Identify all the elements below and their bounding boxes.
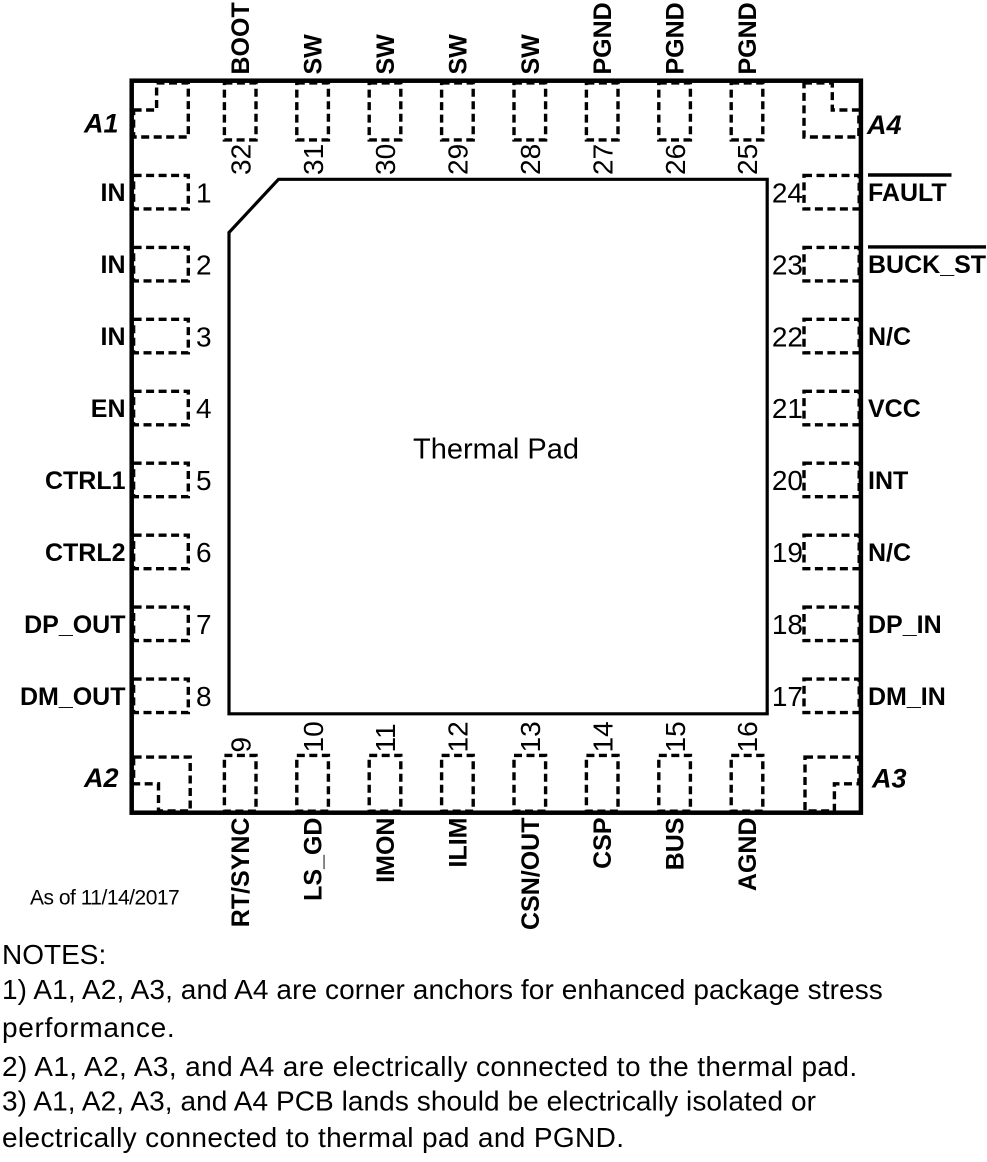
svg-text:1) A1, A2, A3, and A4 are corn: 1) A1, A2, A3, and A4 are corner anchors… — [2, 974, 883, 1005]
svg-text:12: 12 — [443, 721, 474, 752]
svg-text:10: 10 — [298, 721, 329, 752]
svg-text:30: 30 — [370, 144, 401, 175]
svg-text:PGND: PGND — [662, 2, 690, 74]
svg-text:EN: EN — [91, 395, 126, 423]
svg-text:11: 11 — [370, 723, 401, 752]
svg-text:A2: A2 — [83, 763, 119, 793]
svg-text:SW: SW — [517, 34, 545, 75]
svg-text:PGND: PGND — [734, 2, 762, 74]
svg-text:DM_IN: DM_IN — [868, 683, 946, 711]
svg-text:DP_OUT: DP_OUT — [24, 611, 125, 639]
svg-text:27: 27 — [587, 144, 618, 175]
svg-text:N/C: N/C — [868, 539, 911, 567]
svg-text:IMON: IMON — [372, 818, 400, 883]
svg-text:23: 23 — [772, 249, 803, 280]
svg-text:N/C: N/C — [868, 323, 911, 351]
svg-text:17: 17 — [772, 681, 803, 712]
svg-text:14: 14 — [587, 721, 618, 752]
svg-text:NOTES:: NOTES: — [2, 939, 106, 970]
svg-text:LS_GD: LS_GD — [300, 818, 328, 901]
svg-text:13: 13 — [515, 721, 546, 752]
svg-text:26: 26 — [660, 144, 691, 175]
svg-text:PGND: PGND — [589, 2, 617, 74]
svg-text:CSN/OUT: CSN/OUT — [517, 818, 545, 931]
svg-text:4: 4 — [196, 393, 212, 424]
svg-text:A3: A3 — [871, 763, 907, 793]
svg-text:DM_OUT: DM_OUT — [20, 683, 126, 711]
svg-text:A1: A1 — [83, 109, 119, 139]
svg-text:7: 7 — [196, 609, 212, 640]
svg-text:IN: IN — [101, 323, 126, 351]
svg-text:25: 25 — [732, 144, 763, 175]
svg-text:IN: IN — [101, 179, 126, 207]
svg-text:IN: IN — [101, 251, 126, 279]
svg-text:8: 8 — [196, 681, 212, 712]
svg-text:RT/SYNC: RT/SYNC — [227, 818, 255, 928]
svg-text:15: 15 — [660, 721, 691, 752]
svg-text:2: 2 — [196, 249, 212, 280]
svg-text:electrically connected to ther: electrically connected to thermal pad an… — [2, 1122, 624, 1153]
svg-text:performance.: performance. — [2, 1012, 175, 1043]
svg-text:A4: A4 — [866, 110, 902, 140]
svg-text:22: 22 — [772, 321, 803, 352]
svg-text:21: 21 — [772, 393, 803, 424]
svg-text:6: 6 — [196, 537, 212, 568]
svg-text:19: 19 — [772, 537, 803, 568]
svg-text:SW: SW — [300, 34, 328, 75]
svg-text:BUS: BUS — [662, 818, 690, 871]
svg-text:BOOT: BOOT — [227, 2, 255, 74]
svg-text:29: 29 — [443, 144, 474, 175]
svg-text:BUCK_ST: BUCK_ST — [868, 251, 986, 279]
svg-text:FAULT: FAULT — [868, 179, 947, 207]
svg-text:9: 9 — [225, 737, 256, 753]
svg-text:DP_IN: DP_IN — [868, 611, 942, 639]
svg-text:5: 5 — [196, 465, 212, 496]
svg-text:As of 11/14/2017: As of 11/14/2017 — [30, 887, 179, 910]
svg-text:24: 24 — [772, 177, 803, 208]
svg-text:2) A1, A2, A3, and A4 are elec: 2) A1, A2, A3, and A4 are electrically c… — [2, 1051, 857, 1082]
svg-text:18: 18 — [772, 609, 803, 640]
svg-text:ILIM: ILIM — [444, 818, 472, 868]
svg-text:28: 28 — [515, 144, 546, 175]
svg-text:SW: SW — [372, 34, 400, 75]
svg-text:CTRL2: CTRL2 — [45, 539, 126, 567]
svg-text:AGND: AGND — [734, 818, 762, 892]
svg-text:VCC: VCC — [868, 395, 921, 423]
svg-text:CSP: CSP — [589, 818, 617, 869]
svg-text:SW: SW — [444, 34, 472, 75]
svg-text:32: 32 — [225, 144, 256, 175]
svg-text:16: 16 — [732, 721, 763, 752]
svg-text:3: 3 — [196, 321, 212, 352]
svg-text:Thermal Pad: Thermal Pad — [413, 434, 579, 466]
svg-text:INT: INT — [868, 467, 908, 495]
svg-text:CTRL1: CTRL1 — [45, 467, 126, 495]
svg-text:1: 1 — [196, 177, 212, 208]
svg-text:20: 20 — [772, 465, 803, 496]
svg-text:31: 31 — [298, 144, 329, 175]
svg-text:3) A1, A2, A3, and A4 PCB land: 3) A1, A2, A3, and A4 PCB lands should b… — [2, 1086, 816, 1117]
